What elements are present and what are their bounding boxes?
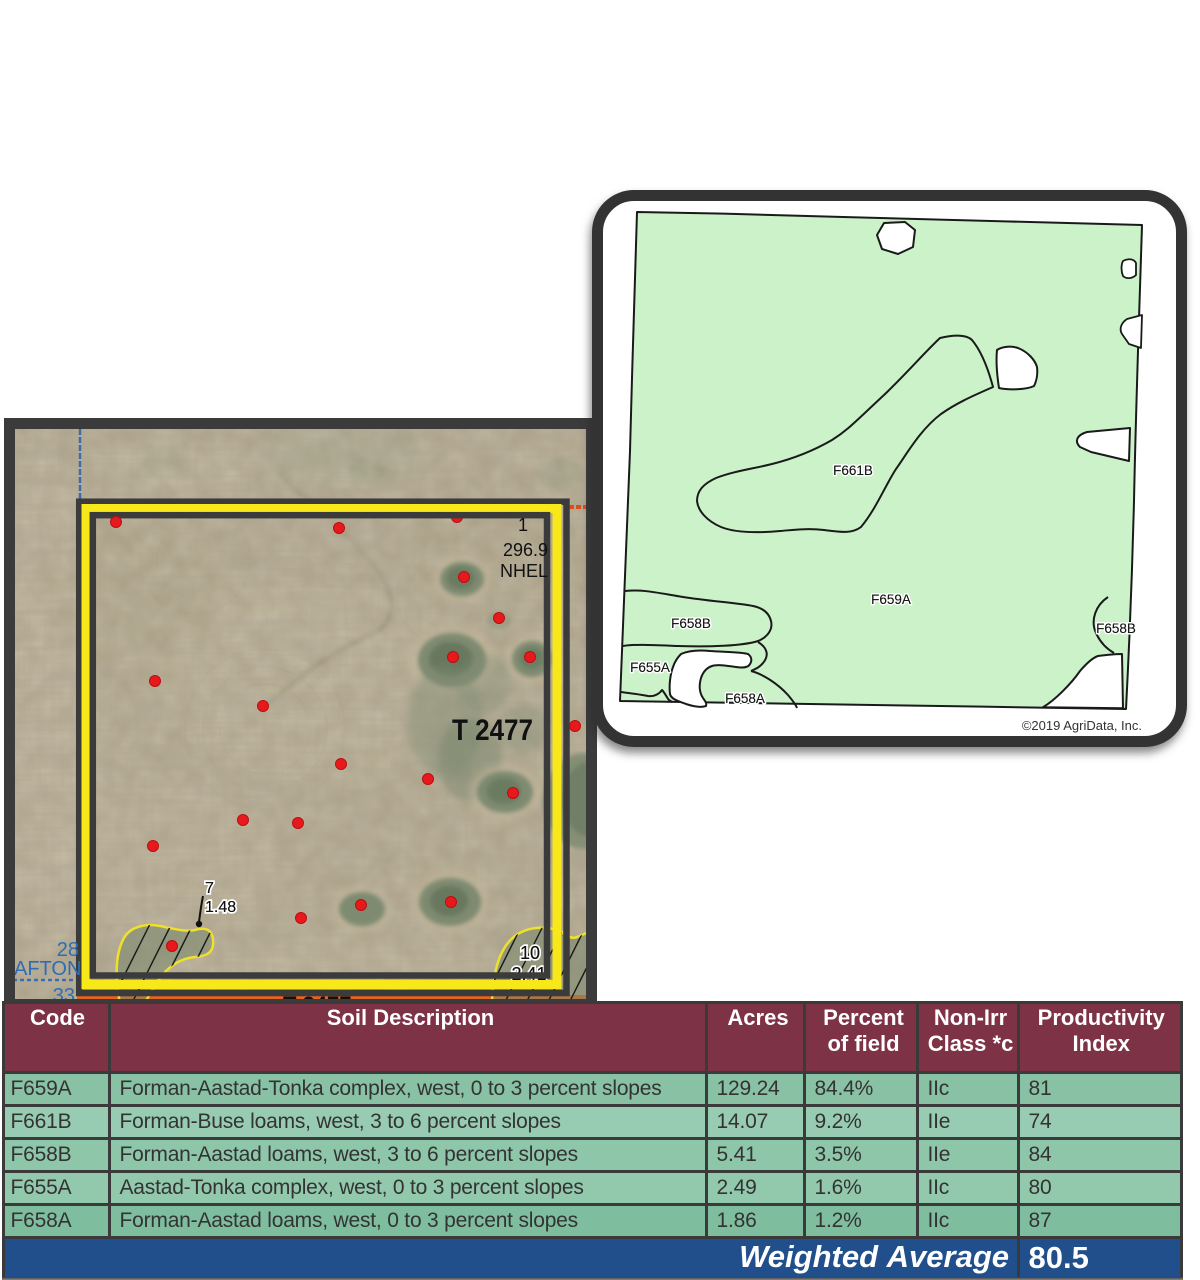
svg-text:NHEL: NHEL bbox=[500, 561, 548, 581]
svg-text:4 58.99 NHEL: 4 58.99 NHEL bbox=[107, 996, 214, 999]
svg-text:1.48: 1.48 bbox=[205, 899, 236, 916]
svg-text:F658A: F658A bbox=[725, 691, 765, 706]
svg-text:F655A: F655A bbox=[630, 660, 670, 675]
svg-text:F658B: F658B bbox=[671, 616, 711, 631]
svg-text:7: 7 bbox=[205, 880, 214, 897]
svg-text:T 2477: T 2477 bbox=[283, 992, 352, 999]
svg-text:F658B: F658B bbox=[1096, 621, 1136, 636]
svg-text:10: 10 bbox=[520, 943, 540, 963]
svg-text:296.9: 296.9 bbox=[503, 540, 548, 560]
svg-text:F661B: F661B bbox=[833, 463, 873, 478]
svg-text:AFTON: AFTON bbox=[15, 958, 81, 980]
svg-text:F659A: F659A bbox=[871, 592, 911, 607]
svg-text:1: 1 bbox=[518, 515, 528, 535]
svg-text:T 2477: T 2477 bbox=[452, 714, 533, 747]
svg-text:©2019 AgriData, Inc.: ©2019 AgriData, Inc. bbox=[1022, 718, 1142, 733]
svg-text:33: 33 bbox=[53, 985, 75, 999]
